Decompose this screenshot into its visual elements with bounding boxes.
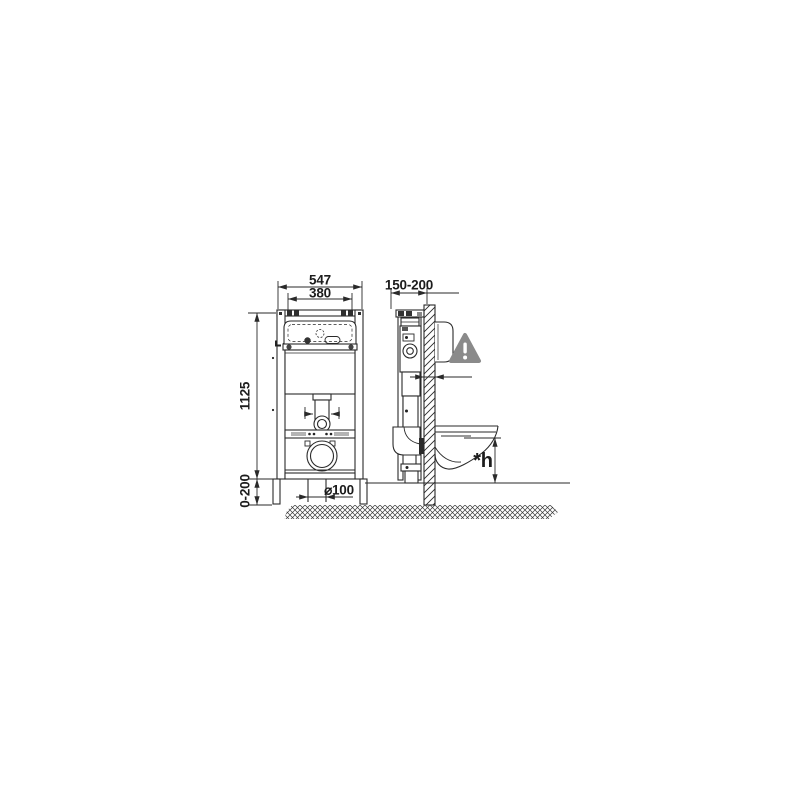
label-frame-height: 1125	[238, 382, 252, 411]
fixing-pad-left	[291, 432, 306, 436]
wall-section	[424, 305, 435, 505]
fixing-pad-right	[334, 432, 349, 436]
flush-pipe	[305, 394, 339, 432]
front-view	[248, 281, 367, 505]
side-view	[391, 288, 501, 505]
label-drain-diameter: ⌀100	[324, 483, 354, 497]
lid-screw-left	[286, 344, 291, 349]
installation-diagram	[0, 0, 800, 800]
filler-valve-dot	[304, 337, 310, 343]
label-mounting-width: 380	[309, 286, 331, 300]
label-wall-distance: 150-200	[385, 278, 433, 292]
ground-hatch	[284, 505, 558, 519]
label-bowl-height: *h	[473, 451, 493, 471]
side-foot	[405, 471, 418, 483]
support-crossbar	[285, 430, 355, 438]
warning-icon	[451, 335, 479, 361]
technical-drawing-canvas: 547 380 1125 0-200 ⌀100 150-200 *h	[0, 0, 800, 800]
lid-screw-right	[348, 344, 353, 349]
label-foot-adjustment: 0-200	[238, 474, 252, 508]
drain-outlet	[305, 441, 337, 471]
wall-anchor	[419, 438, 424, 454]
flush-plate-housing	[435, 322, 453, 362]
cistern-front	[283, 321, 357, 394]
cistern-side	[400, 318, 421, 396]
adjustable-foot-left	[273, 479, 280, 504]
